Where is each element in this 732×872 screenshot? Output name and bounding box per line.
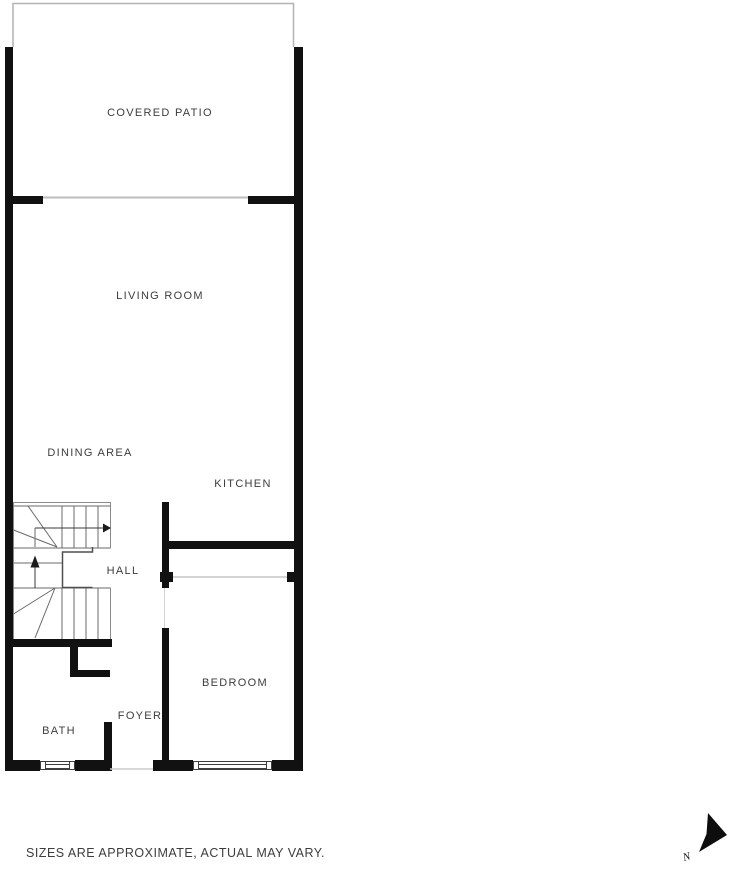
north-arrow-icon [699, 813, 727, 852]
room-label-hall: HALL [107, 565, 140, 577]
room-label-foyer: FOYER [118, 710, 162, 722]
room-label-bath: BATH [42, 725, 76, 737]
room-label-bedroom: BEDROOM [202, 677, 268, 689]
north-arrow: N [681, 813, 727, 864]
stairs-up-arrow-icon [31, 556, 40, 589]
room-label-kitchen: KITCHEN [214, 478, 271, 490]
stair-well-notch [63, 547, 93, 588]
floor-plan: N COVERED PATIO LIVING ROOM DINING AREA … [0, 0, 732, 872]
disclaimer-text: SIZES ARE APPROXIMATE, ACTUAL MAY VARY. [26, 846, 325, 860]
room-label-dining-area: DINING AREA [47, 447, 132, 459]
north-label: N [681, 850, 693, 864]
staircase [14, 503, 112, 640]
room-label-covered-patio: COVERED PATIO [107, 107, 213, 119]
room-label-living-room: LIVING ROOM [116, 290, 204, 302]
patio-outline [13, 4, 294, 48]
plan-linework: N [0, 0, 732, 872]
